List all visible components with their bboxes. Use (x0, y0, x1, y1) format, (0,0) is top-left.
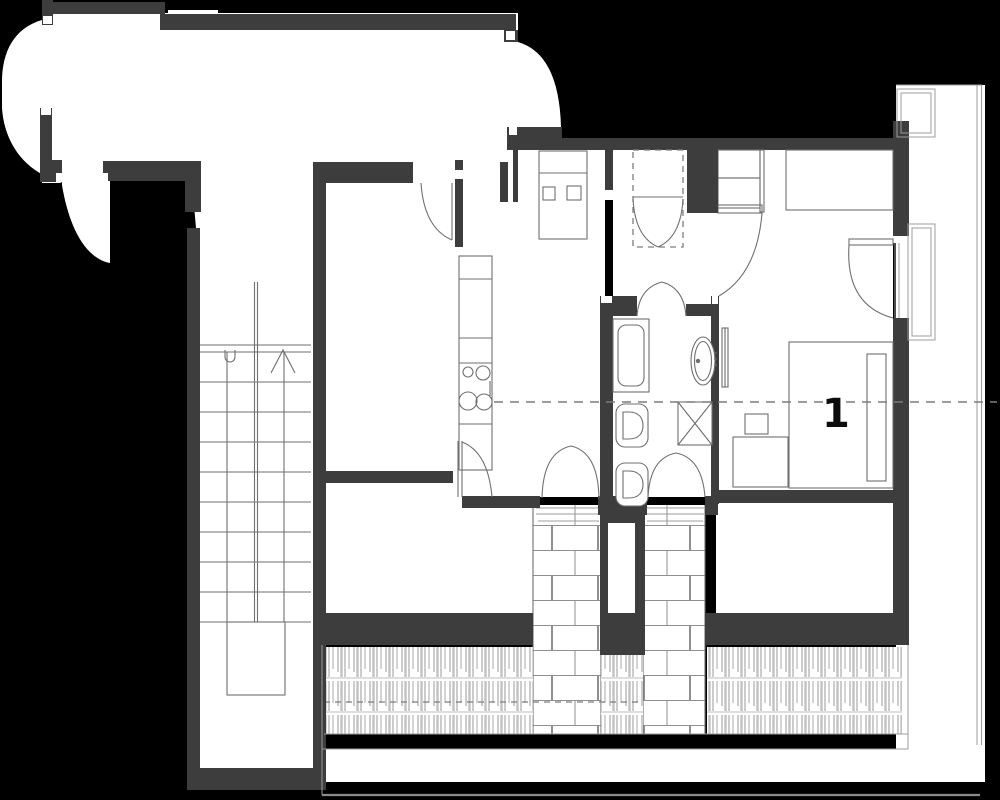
bedroom-loggia-floor (716, 503, 893, 613)
bedroom-door-opening (711, 213, 718, 296)
ventilation-shaft-icon (678, 402, 712, 445)
stairwell-left-wall (187, 228, 200, 790)
floor-plan-screenshot: 1 (0, 0, 1000, 800)
top-thin-line (168, 10, 218, 13)
kitchen-fixtures (459, 256, 492, 470)
tile-path-bathroom (643, 505, 705, 734)
floor-plan-svg: 1 (0, 0, 1000, 800)
balcony-railing-texture (324, 647, 902, 734)
stair-lower-landing (227, 622, 285, 695)
parapet-left (322, 613, 533, 645)
toilet-icon (616, 404, 648, 447)
right-balcony-strip (896, 85, 985, 782)
section-mark-label: 1 (822, 391, 850, 437)
living-room-floor (326, 162, 455, 471)
bidet-icon (616, 463, 648, 506)
bedroom-bottom-wall (716, 490, 896, 503)
garden-band (322, 749, 980, 782)
parapet-right (705, 613, 909, 645)
tile-path-kitchen (533, 505, 601, 734)
